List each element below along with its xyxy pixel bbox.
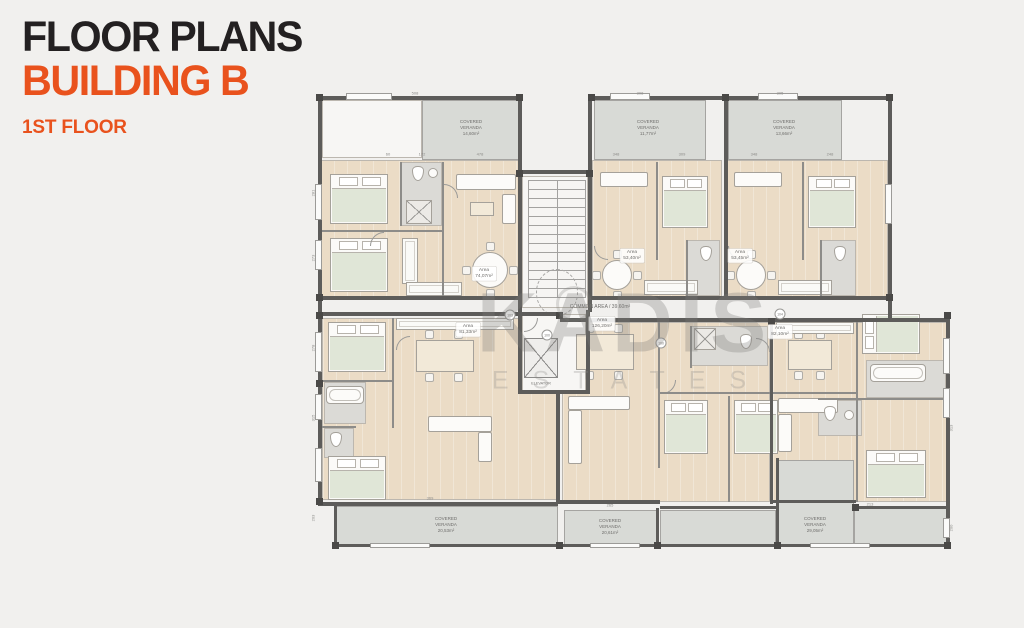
wall-segment [660, 506, 778, 509]
common-area-label: COMMON AREA / 39.60m² [570, 304, 630, 311]
pillow [816, 179, 832, 188]
apt6-covered-veranda-b [854, 508, 948, 546]
blanket [810, 190, 854, 226]
chair [633, 271, 642, 280]
blanket [666, 414, 706, 452]
apt6-veranda-label: COVERED VERANDA 29,05m² [804, 516, 826, 534]
chair [592, 271, 601, 280]
chair [425, 330, 434, 339]
pillow [687, 179, 702, 188]
pillow [362, 177, 381, 186]
pillow [865, 321, 874, 334]
apt5-sofa [568, 396, 630, 410]
door-number-badge: 100 [542, 330, 553, 341]
partition-wall [772, 392, 856, 394]
dimension-label: 478 [477, 152, 484, 157]
mid-covered-veranda-2 [660, 510, 776, 546]
partition-wall [400, 162, 402, 226]
blanket [332, 252, 386, 290]
partition-wall [658, 392, 770, 394]
column [588, 94, 595, 101]
apt4-kitchen-counter [396, 318, 514, 330]
chair [794, 371, 803, 380]
wall-segment [518, 170, 522, 394]
column [586, 170, 593, 177]
floor-label: 1ST FLOOR [22, 117, 314, 139]
wall-segment [556, 390, 560, 504]
apt4-area-label: Area 81,33m² [456, 323, 480, 337]
partition-wall [856, 322, 858, 502]
apt6-bed-2 [866, 450, 926, 498]
column [654, 542, 661, 549]
pillow [337, 325, 356, 334]
column [944, 312, 951, 319]
column [722, 94, 729, 101]
dimension-label: 313 [949, 425, 954, 432]
title-block: FLOOR PLANS BUILDING B 1ST FLOOR [22, 16, 314, 139]
apt4-sofa [428, 416, 492, 432]
pillow [876, 453, 895, 462]
column [332, 542, 339, 549]
partition-wall [818, 398, 948, 400]
apt5-dining-table [576, 334, 634, 370]
apt5-area-label: Area 126,20m² [589, 317, 615, 331]
apt6-sofa-chaise [778, 414, 792, 452]
wall-segment [318, 502, 558, 506]
apt4-sofa-chaise [478, 432, 492, 462]
apt1-kitchen-counter-2 [406, 282, 462, 296]
apt5-sofa-chaise [568, 410, 582, 464]
apt6-bathtub [870, 364, 926, 382]
window [943, 338, 950, 374]
column [556, 312, 563, 319]
apt3-sofa [734, 172, 782, 187]
dimension-label: 309 [679, 152, 686, 157]
partition-wall [320, 426, 356, 428]
wall-segment [518, 170, 590, 174]
pillow [671, 403, 686, 412]
staircase [528, 180, 586, 298]
wall-segment [770, 322, 773, 504]
apt3-veranda-label: COVERED VERANDA 13,66m² [773, 119, 795, 137]
pillow [834, 179, 850, 188]
dimension-label: 348 [613, 152, 620, 157]
column [774, 542, 781, 549]
chair [614, 371, 623, 380]
pillow [899, 453, 918, 462]
apt6-area-label: Area 82,10m² [768, 325, 792, 339]
dimension-label: 273 [311, 255, 316, 262]
apt1-kitchen-counter [402, 238, 418, 284]
dimension-label: 348 [751, 152, 758, 157]
column [316, 498, 323, 505]
column [316, 294, 323, 301]
chair [462, 266, 471, 275]
pillow [339, 241, 358, 250]
apt1-shower [406, 200, 432, 224]
apt1-sofa [456, 174, 516, 190]
window [315, 394, 322, 420]
wall-segment [560, 318, 950, 322]
window [315, 240, 322, 270]
elevator-label: ELEVATOR [531, 382, 551, 387]
wall-segment [334, 544, 560, 547]
chair [767, 271, 776, 280]
window [315, 184, 322, 220]
partition-wall [320, 230, 442, 232]
apt4-veranda-label: COVERED VERANDA 20,53m² [435, 516, 457, 534]
dimension-label: 278 [311, 345, 316, 352]
dimension-label: 172 [419, 152, 426, 157]
apt1-sink [428, 168, 438, 178]
blanket [664, 190, 706, 226]
apt2-area-label: Area 53,40m² [620, 249, 644, 263]
apt1-armchair [502, 194, 516, 224]
pillow [670, 179, 685, 188]
column [886, 294, 893, 301]
chair [454, 373, 463, 382]
dimension-label: 200 [949, 525, 954, 532]
partition-wall [392, 318, 394, 428]
apt4-bed-1 [328, 322, 386, 372]
apt2-bed [662, 176, 708, 228]
wall-segment [318, 296, 522, 300]
pillow [741, 403, 756, 412]
wall-segment [656, 508, 659, 546]
window [315, 448, 322, 482]
partition-wall [320, 380, 392, 382]
dimension-label: 265 [607, 503, 614, 508]
dimension-label: 369 [427, 496, 434, 501]
column [944, 542, 951, 549]
dimension-label: 203 [311, 515, 316, 522]
window [346, 93, 392, 100]
wall-segment [772, 500, 856, 503]
chair [425, 373, 434, 382]
apt6-sink [844, 410, 854, 420]
column [316, 312, 323, 319]
apt1-open-terrace [322, 100, 422, 158]
door-number-badge: 104 [775, 309, 786, 320]
partition-wall [686, 240, 688, 298]
blanket [330, 336, 384, 370]
blanket [330, 470, 384, 498]
pillow [360, 459, 379, 468]
floor-plan-canvas: COVERED VERANDA 14,60m²COVERED VERANDA 1… [310, 88, 958, 560]
wall-segment [588, 96, 592, 312]
column [852, 504, 859, 511]
page: { "title": { "line1": "FLOOR PLANS", "li… [0, 0, 1024, 628]
pillow [337, 459, 356, 468]
dimension-label: 281 [311, 190, 316, 197]
elevator-shaft [524, 338, 558, 378]
column [886, 94, 893, 101]
partition-wall [690, 326, 692, 368]
apt3-dining-table [736, 260, 766, 290]
apt3-bed [808, 176, 856, 228]
dimension-label: 315 [311, 415, 316, 422]
page-title: FLOOR PLANS [22, 16, 302, 60]
dimension-label: 248 [827, 152, 834, 157]
window [810, 543, 870, 548]
door-number-badge: 100 [656, 338, 667, 349]
blanket [868, 464, 924, 496]
apt6-dining-table [788, 340, 832, 370]
wall-segment [318, 312, 562, 316]
apt1-area-label: Area 74,07m² [472, 267, 496, 281]
window [370, 543, 430, 548]
wall-segment [592, 296, 890, 300]
dimension-label: 60 [386, 152, 390, 157]
wall-segment [724, 96, 728, 298]
window [315, 332, 322, 372]
apt1-veranda-label: COVERED VERANDA 14,60m² [460, 119, 482, 137]
apt3-kitchen-counter [778, 280, 832, 295]
chair [509, 266, 518, 275]
pillow [339, 177, 358, 186]
column [316, 380, 323, 387]
apt2-veranda-label: COVERED VERANDA 11,77m² [637, 119, 659, 137]
apt3-area-label: Area 53,45m² [728, 249, 752, 263]
wall-segment [334, 504, 337, 546]
pillow [688, 403, 703, 412]
partition-wall [820, 240, 822, 298]
partition-wall [728, 396, 730, 502]
wall-segment [518, 96, 522, 174]
window [610, 93, 650, 100]
partition-wall [802, 162, 804, 260]
pillow [360, 325, 379, 334]
apt4-bed-2 [328, 456, 386, 500]
apt1-bed-2 [330, 238, 388, 292]
apt4-dining-table [416, 340, 474, 372]
chair [486, 242, 495, 251]
column [556, 542, 563, 549]
apt5-shower [694, 328, 716, 350]
dimension-label: 308 [637, 91, 644, 96]
partition-wall [442, 162, 444, 298]
dimension-label: 508 [412, 91, 419, 96]
mid-veranda-label: COVERED VERANDA 20,61m² [599, 518, 621, 536]
column [516, 170, 523, 177]
column [516, 94, 523, 101]
apt1-bed-1 [330, 174, 388, 224]
dimension-label: 213 [867, 502, 874, 507]
window [943, 388, 950, 418]
dimension-label: 305 [777, 91, 784, 96]
apt2-dining-table [602, 260, 632, 290]
apt2-sofa [600, 172, 648, 187]
chair [816, 371, 825, 380]
pillow [865, 336, 874, 349]
column [316, 94, 323, 101]
door-number-badge: 103 [505, 310, 516, 321]
building-subtitle: BUILDING B [22, 60, 302, 104]
wall-segment [518, 390, 590, 394]
apt5-bed-1 [664, 400, 708, 454]
window [885, 184, 892, 224]
apt2-kitchen-counter [644, 280, 698, 295]
partition-wall [656, 162, 658, 260]
blanket [332, 188, 386, 222]
apt1-coffee-table [470, 202, 494, 216]
apt4-bathtub [326, 386, 364, 404]
window [590, 543, 640, 548]
chair [614, 324, 623, 333]
